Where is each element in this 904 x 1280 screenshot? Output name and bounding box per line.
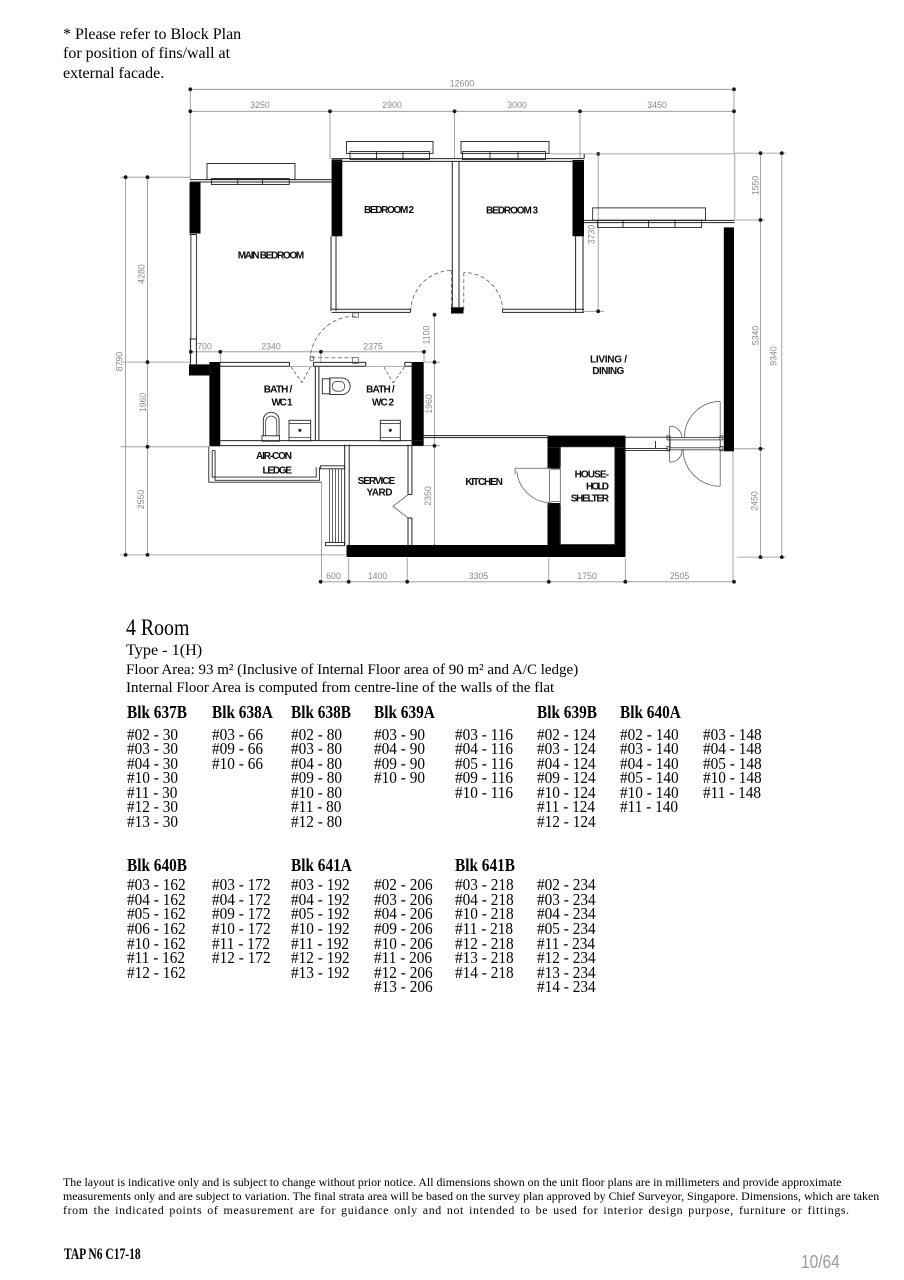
svg-text:1750: 1750: [577, 571, 597, 581]
svg-text:YARD: YARD: [367, 487, 393, 498]
svg-text:3450: 3450: [647, 100, 667, 110]
svg-text:KITCHEN: KITCHEN: [465, 477, 502, 488]
svg-text:5340: 5340: [751, 326, 761, 346]
svg-text:HOUSE-: HOUSE-: [575, 469, 609, 480]
svg-text:2375: 2375: [363, 341, 383, 351]
svg-text:3305: 3305: [469, 571, 489, 581]
svg-text:WC 2: WC 2: [372, 398, 394, 409]
svg-text:BEDROOM 2: BEDROOM 2: [364, 205, 414, 216]
svg-text:BATH /: BATH /: [264, 384, 293, 395]
svg-text:4280: 4280: [137, 264, 147, 284]
svg-text:WC 1: WC 1: [272, 398, 293, 409]
svg-text:8790: 8790: [115, 352, 125, 372]
svg-text:3730: 3730: [587, 225, 597, 245]
svg-text:AIR-CON: AIR-CON: [256, 451, 292, 462]
svg-text:2900: 2900: [382, 100, 402, 110]
svg-text:LEDGE: LEDGE: [263, 465, 293, 476]
svg-text:700: 700: [197, 341, 212, 351]
svg-text:LIVING /: LIVING /: [590, 354, 627, 365]
svg-text:9340: 9340: [769, 346, 779, 366]
svg-text:SERVICE: SERVICE: [358, 476, 396, 487]
svg-text:2505: 2505: [670, 571, 690, 581]
svg-text:12600: 12600: [450, 78, 475, 88]
svg-text:HOLD: HOLD: [586, 481, 609, 492]
svg-text:1100: 1100: [422, 325, 432, 344]
svg-text:SHELTER: SHELTER: [571, 494, 610, 505]
svg-text:2550: 2550: [136, 490, 146, 510]
svg-text:1960: 1960: [424, 394, 434, 414]
svg-text:MAIN BEDROOM: MAIN BEDROOM: [238, 251, 305, 262]
svg-text:1550: 1550: [751, 176, 761, 196]
svg-text:2450: 2450: [750, 491, 760, 511]
svg-text:BEDROOM 3: BEDROOM 3: [486, 206, 538, 217]
svg-text:DINING: DINING: [592, 366, 624, 377]
svg-text:3250: 3250: [250, 100, 270, 110]
svg-text:2340: 2340: [261, 341, 281, 351]
svg-text:3000: 3000: [507, 100, 527, 110]
svg-text:600: 600: [326, 571, 341, 581]
svg-text:1400: 1400: [368, 571, 388, 581]
svg-text:BATH /: BATH /: [366, 384, 395, 395]
svg-text:1960: 1960: [138, 393, 148, 413]
svg-text:2350: 2350: [423, 486, 433, 506]
